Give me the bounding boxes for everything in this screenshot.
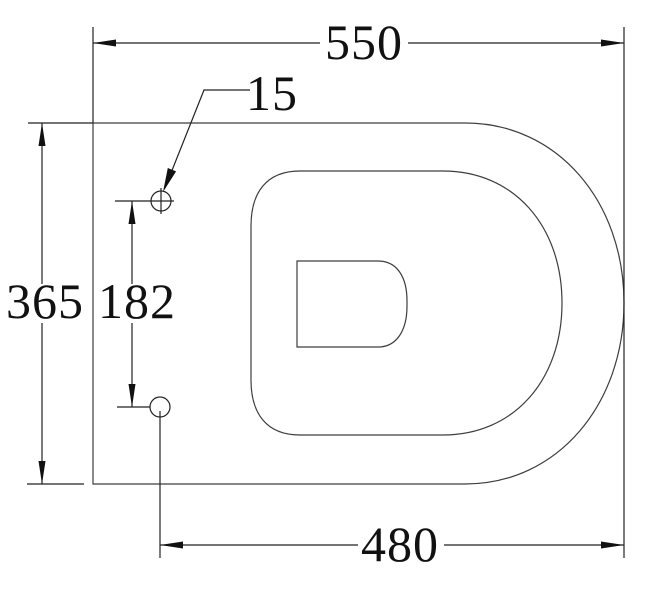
dimension-drawing: 550 15 365 182 480 (0, 0, 665, 600)
dim-label-hole-to-front: 480 (361, 519, 439, 569)
dim-label-hole-spacing: 182 (98, 276, 176, 326)
water-pool-outline (297, 261, 407, 347)
dim-label-overall-depth: 365 (6, 276, 84, 326)
dim-label-overall-width: 550 (325, 17, 403, 67)
leader-hole-diameter (163, 90, 250, 192)
dim-label-hole-diameter: 15 (246, 68, 298, 118)
